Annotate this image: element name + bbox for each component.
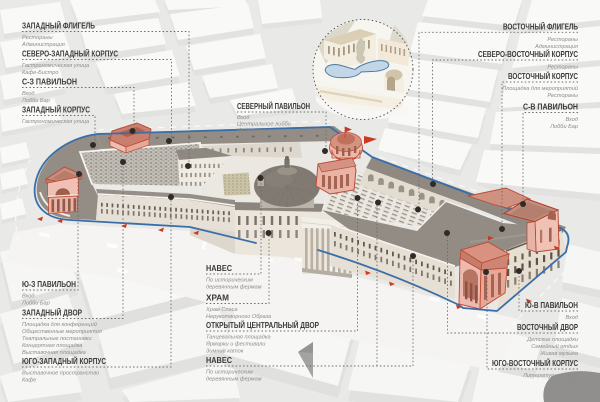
svg-text:Ю-В ПАВИЛЬОН: Ю-В ПАВИЛЬОН [525,301,578,310]
svg-text:Танцевальная площадка: Танцевальная площадка [206,335,271,341]
svg-text:Детские площадки: Детские площадки [526,337,578,343]
svg-text:ВОСТОЧНЫЙ ФЛИГЕЛЬ: ВОСТОЧНЫЙ ФЛИГЕЛЬ [503,20,578,31]
svg-text:Вход: Вход [22,91,34,97]
svg-text:Вход: Вход [237,115,249,121]
svg-text:деревянным фермам: деревянным фермам [206,377,262,383]
svg-text:СЕВЕРНЫЙ ПАВИЛЬОН: СЕВЕРНЫЙ ПАВИЛЬОН [237,100,310,111]
svg-text:НАВЕС: НАВЕС [206,264,232,273]
svg-text:Выставочное пространство: Выставочное пространство [22,371,99,377]
svg-text:Семейный отдых: Семейный отдых [531,343,578,350]
svg-text:Вход: Вход [566,117,578,123]
svg-text:Рестораны: Рестораны [22,35,53,41]
svg-text:СЕВЕРО-ВОСТОЧНЫЙ КОРПУС: СЕВЕРО-ВОСТОЧНЫЙ КОРПУС [478,48,578,59]
svg-text:Живая музыка: Живая музыка [539,351,578,357]
svg-text:Общественные мероприятия: Общественные мероприятия [22,329,102,335]
svg-text:ЗАПАДНЫЙ ФЛИГЕЛЬ: ЗАПАДНЫЙ ФЛИГЕЛЬ [22,20,95,31]
svg-text:С-В ПАВИЛЬОН: С-В ПАВИЛЬОН [523,103,578,112]
svg-text:ВОСТОЧНЫЙ КОРПУС: ВОСТОЧНЫЙ КОРПУС [508,70,578,81]
svg-text:Ярмарки и фестивали: Ярмарки и фестивали [205,342,265,348]
svg-text:Рестораны: Рестораны [547,65,578,71]
svg-text:Кафе: Кафе [564,380,578,386]
svg-text:Театральные постановки: Театральные постановки [22,336,92,342]
svg-text:НАВЕС: НАВЕС [206,356,232,365]
svg-text:Лобби Бар: Лобби Бар [549,124,578,130]
svg-text:Кафе-Бистро: Кафе-Бистро [22,70,59,76]
svg-text:Нерукотворного Образа: Нерукотворного Образа [206,314,271,320]
svg-text:деревянным фермам: деревянным фермам [206,285,262,291]
svg-text:Вход: Вход [566,315,578,321]
svg-text:По историческим: По историческим [206,370,253,376]
svg-text:Гастрономическая улица: Гастрономическая улица [22,119,89,125]
svg-text:Администрация: Администрация [21,42,65,48]
svg-text:Лобби Бар: Лобби Бар [21,301,50,307]
svg-text:ЗАПАДНЫЙ ДВОР: ЗАПАДНЫЙ ДВОР [22,307,82,318]
svg-text:ВОСТОЧНЫЙ ДВОР: ВОСТОЧНЫЙ ДВОР [517,321,578,332]
svg-text:Лобби Бар: Лобби Бар [21,98,50,104]
svg-text:Концертная площадка: Концертная площадка [22,343,82,349]
svg-text:ЮГО-ВОСТОЧНЫЙ КОРПУС: ЮГО-ВОСТОЧНЫЙ КОРПУС [492,357,578,368]
svg-text:ХРАМ: ХРАМ [206,294,229,303]
svg-text:ЮГО-ЗАПАДНЫЙ КОРПУС: ЮГО-ЗАПАДНЫЙ КОРПУС [22,355,106,366]
svg-text:Храм Спаса: Храм Спаса [205,307,237,313]
svg-text:Информационная зона: Информационная зона [237,128,297,134]
svg-text:Центральное лобби: Центральное лобби [237,122,291,128]
svg-text:Рестораны: Рестораны [547,37,578,43]
svg-text:Площадка для конференций: Площадка для конференций [22,321,97,328]
svg-text:СЕВЕРО-ЗАПАДНЫЙ КОРПУС: СЕВЕРО-ЗАПАДНЫЙ КОРПУС [22,48,118,59]
svg-text:Рестораны: Рестораны [547,93,578,99]
svg-text:Ю-З ПАВИЛЬОН: Ю-З ПАВИЛЬОН [22,280,76,289]
svg-text:С-З ПАВИЛЬОН: С-З ПАВИЛЬОН [22,78,77,87]
svg-text:Гастрономическая улица: Гастрономическая улица [22,63,89,69]
svg-text:Площадка для мероприятий: Площадка для мероприятий [502,85,578,92]
svg-text:Литературный клуб: Литературный клуб [522,372,579,379]
svg-text:ЗАПАДНЫЙ КОРПУС: ЗАПАДНЫЙ КОРПУС [22,104,90,115]
svg-text:Кафе: Кафе [22,378,36,384]
svg-text:Выставочная площадка: Выставочная площадка [22,350,86,356]
svg-text:Вход: Вход [22,294,34,300]
svg-text:ОТКРЫТЫЙ ЦЕНТРАЛЬНЫЙ ДВОР: ОТКРЫТЫЙ ЦЕНТРАЛЬНЫЙ ДВОР [206,319,319,330]
svg-text:Зимний каток: Зимний каток [206,348,244,355]
svg-text:По историческим: По историческим [206,278,253,284]
